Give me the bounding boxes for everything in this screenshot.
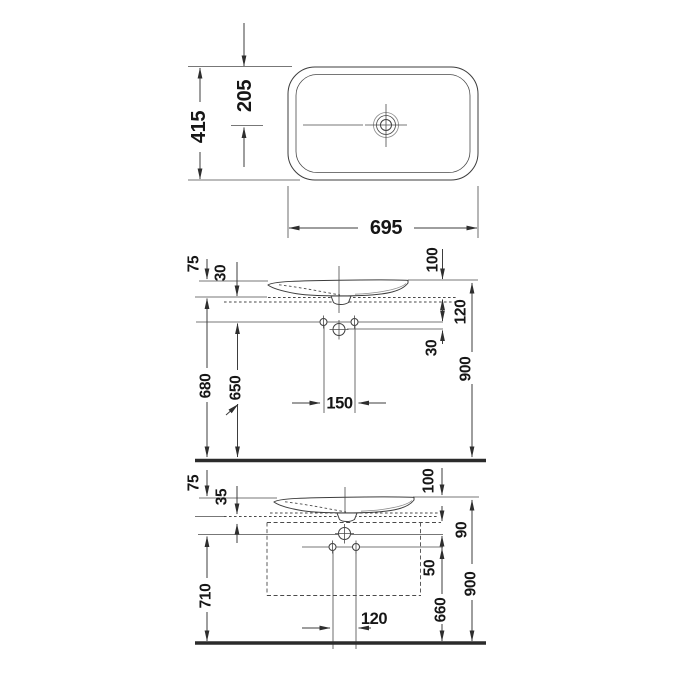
- dim-label-100: 100: [421, 469, 438, 494]
- mounting-holes: [320, 316, 358, 340]
- leader-arrow: [226, 405, 238, 416]
- dim-label-100: 100: [425, 248, 442, 273]
- dim-label-30-right: 30: [424, 340, 441, 356]
- dim-hole-spacing: 120: [302, 610, 387, 628]
- basin-inner-rim: [296, 75, 470, 173]
- dim-label-650: 650: [228, 376, 245, 401]
- dim-deck-to-holes: 90: [442, 506, 471, 549]
- technical-drawing-page: 415 205 695: [0, 0, 700, 700]
- basin-profile: [268, 266, 408, 313]
- dim-label-900: 900: [458, 357, 475, 382]
- dim-drain-offset: 205: [231, 23, 263, 167]
- drain-fitting: [337, 513, 357, 522]
- dim-hole-rows-gap: 50: [422, 560, 439, 576]
- dim-hole-rows-gap: 30: [424, 331, 443, 357]
- dim-deck-to-holes: 120: [443, 300, 470, 325]
- dim-drain-height: 650: [226, 324, 245, 458]
- dim-label-75: 75: [186, 255, 203, 272]
- dim-rim-above-deck: 75: [186, 255, 208, 279]
- elevation-wall-view: 150 75 30 680 650 100: [186, 248, 487, 461]
- dim-label-50: 50: [422, 560, 439, 576]
- dim-label-90: 90: [454, 522, 471, 538]
- dim-label-hole-spacing: 120: [361, 610, 388, 628]
- dim-label-710: 710: [198, 584, 215, 609]
- dim-label-30: 30: [213, 265, 230, 281]
- plan-view: 415 205 695: [188, 23, 478, 239]
- dim-rim-height: 900: [463, 500, 480, 641]
- dim-label-680: 680: [198, 374, 215, 399]
- elevation-furniture-view: 120 75 35 710 100 90 50: [186, 468, 487, 649]
- dim-label-900: 900: [463, 572, 480, 597]
- dim-hole-spacing: 150: [292, 395, 386, 413]
- dim-label-width: 695: [370, 217, 402, 239]
- dim-label-hole-spacing: 150: [326, 395, 353, 413]
- dim-label-drain-offset: 205: [234, 80, 256, 112]
- dim-label-660: 660: [433, 598, 450, 623]
- mounting-holes: [329, 524, 360, 554]
- dim-width: 695: [288, 186, 478, 239]
- dim-label-75: 75: [186, 474, 203, 491]
- dim-label-120: 120: [453, 300, 470, 325]
- dim-label-depth: 415: [188, 111, 210, 143]
- drain-plan: [303, 104, 407, 147]
- dim-cabinet-height: 710: [198, 537, 215, 642]
- dim-deck-inset: 30: [213, 262, 238, 296]
- dim-basin-height: 100: [421, 468, 443, 495]
- basin-outer-outline: [288, 67, 478, 180]
- washbasin-technical-drawing: 415 205 695: [0, 0, 700, 700]
- drain-fitting: [331, 296, 351, 305]
- dim-rim-above-deck: 75: [186, 470, 208, 496]
- dim-label-35: 35: [214, 488, 231, 505]
